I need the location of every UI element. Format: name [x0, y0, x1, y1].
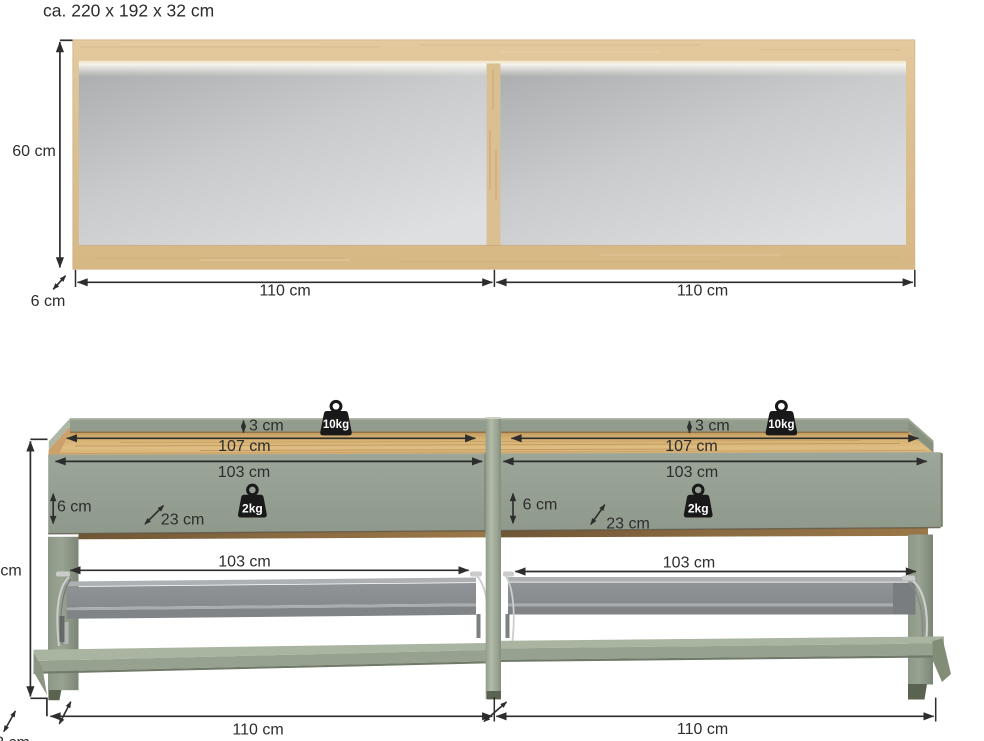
svg-text:23 cm: 23 cm: [161, 512, 205, 529]
svg-text:110 cm: 110 cm: [232, 722, 283, 739]
svg-text:110 cm: 110 cm: [677, 721, 728, 738]
svg-text:110 cm: 110 cm: [259, 283, 310, 300]
svg-text:107 cm: 107 cm: [665, 438, 717, 455]
svg-text:103 cm: 103 cm: [663, 555, 715, 572]
svg-text:6 cm: 6 cm: [523, 497, 558, 514]
svg-text:103 cm: 103 cm: [218, 464, 270, 481]
svg-text:103 cm: 103 cm: [666, 464, 718, 481]
svg-text:2kg: 2kg: [242, 502, 263, 516]
svg-text:3 cm: 3 cm: [249, 418, 284, 435]
svg-text:ca. 220 x 192 x 32 cm: ca. 220 x 192 x 32 cm: [43, 1, 214, 21]
svg-text:48 cm: 48 cm: [0, 563, 22, 580]
svg-text:32 cm: 32 cm: [0, 735, 30, 741]
svg-text:60 cm: 60 cm: [12, 143, 56, 160]
svg-text:103 cm: 103 cm: [218, 554, 270, 571]
svg-text:110 cm: 110 cm: [677, 283, 728, 300]
svg-text:10kg: 10kg: [768, 419, 794, 431]
svg-text:3 cm: 3 cm: [695, 418, 730, 435]
svg-text:2kg: 2kg: [688, 502, 709, 516]
svg-text:6 cm: 6 cm: [31, 293, 66, 310]
svg-text:23 cm: 23 cm: [606, 516, 650, 533]
svg-text:10kg: 10kg: [323, 419, 349, 431]
svg-text:107 cm: 107 cm: [218, 438, 270, 455]
svg-text:6 cm: 6 cm: [57, 499, 92, 516]
